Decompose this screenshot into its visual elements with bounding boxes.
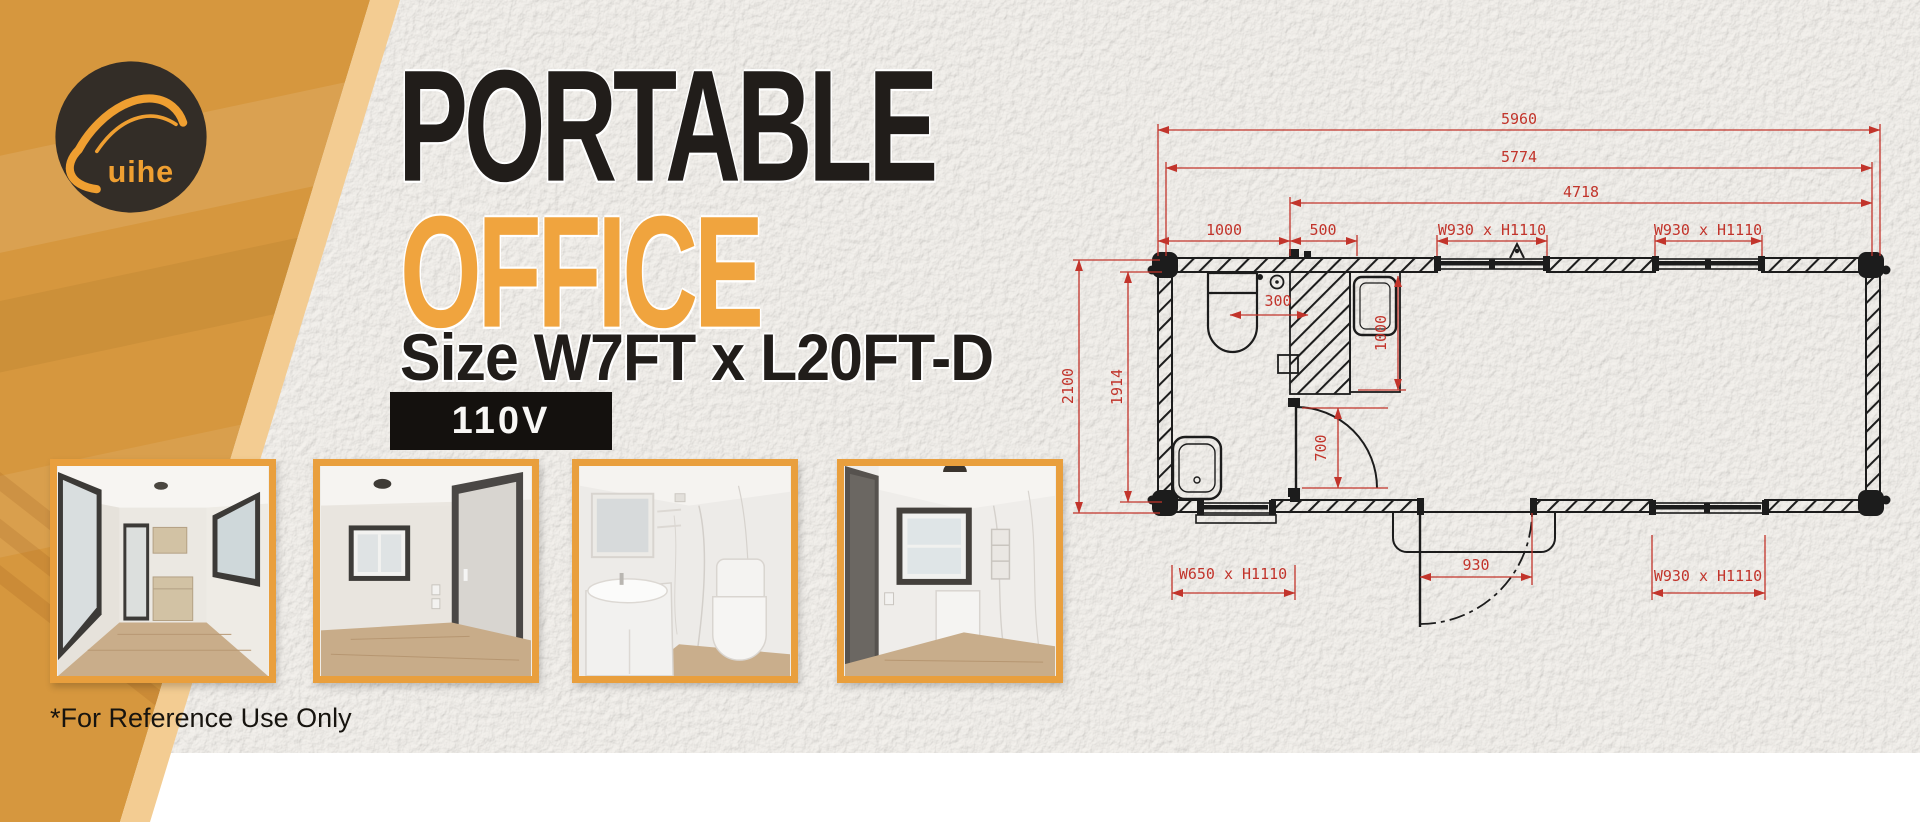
office-room-render [320, 466, 532, 676]
dim-utility-width: 500 [1309, 221, 1336, 239]
dim-counter-depth: 1000 [1372, 315, 1390, 351]
dim-main-room: 4718 [1563, 183, 1599, 201]
dim-frame-length: 5774 [1501, 148, 1537, 166]
dim-window-right: W930 x H1110 [1654, 567, 1762, 585]
headline-line1: PORTABLE [398, 46, 934, 205]
roof-vent-icon [1510, 244, 1524, 258]
dim-interior-width: 1914 [1108, 369, 1126, 405]
thumbnail-bathroom-toilet [572, 459, 798, 683]
dim-bath-door: 700 [1312, 434, 1330, 461]
dim-overall-length: 5960 [1501, 110, 1537, 128]
brand-logo: Suihe uihe [50, 56, 212, 218]
bathroom-window-render [844, 466, 1056, 676]
corner-posts [1148, 252, 1891, 516]
dim-overall-width: 2100 [1059, 368, 1077, 404]
dim-window-top-2: W930 x H1110 [1654, 221, 1762, 239]
headline-size: Size W7FT x L20FT-D [400, 324, 993, 390]
faucet [620, 573, 624, 585]
wall-fitting [1304, 251, 1311, 258]
logo-circle [55, 61, 206, 212]
door-jamb [1288, 398, 1300, 407]
dim-window-bath: W650 x H1110 [1179, 565, 1287, 583]
dim-entry-door: 930 [1462, 556, 1489, 574]
window-top-2 [1652, 256, 1765, 271]
ceiling-light [374, 479, 392, 489]
window-bottom-right [1649, 500, 1769, 515]
window-top-1 [1434, 256, 1550, 271]
office-interior-render [57, 466, 269, 676]
ceiling-light [154, 482, 168, 490]
dim-bath-width: 1000 [1206, 221, 1242, 239]
wash-basin [1173, 437, 1221, 499]
thumbnail-office-room [313, 459, 539, 683]
dim-toilet-offset: 300 [1264, 292, 1291, 310]
banner-root: Suihe uihe PORTABLE OFFICE Size W7FT x L… [0, 0, 1920, 822]
floor-plan: 5960 5774 4718 1000 500 W930 x H1110 W93… [1040, 80, 1920, 640]
dimension-lines [1073, 124, 1880, 600]
thumbnail-bathroom-window [837, 459, 1063, 683]
toilet [1208, 273, 1257, 352]
bathroom-door-swing [1296, 407, 1377, 488]
window-bath-bottom [1196, 500, 1276, 523]
bathroom-render [579, 466, 791, 676]
wall-dot [1257, 274, 1263, 280]
door-handle [464, 569, 468, 581]
voltage-badge: 110V [390, 392, 612, 450]
thumbnail-office-interior [50, 459, 276, 683]
ceiling-light [943, 466, 967, 472]
logo-text: uihe [108, 155, 174, 189]
dim-window-top-1: W930 x H1110 [1438, 221, 1546, 239]
bottom-white-strip [0, 753, 1920, 822]
reference-footnote: *For Reference Use Only [50, 703, 352, 734]
